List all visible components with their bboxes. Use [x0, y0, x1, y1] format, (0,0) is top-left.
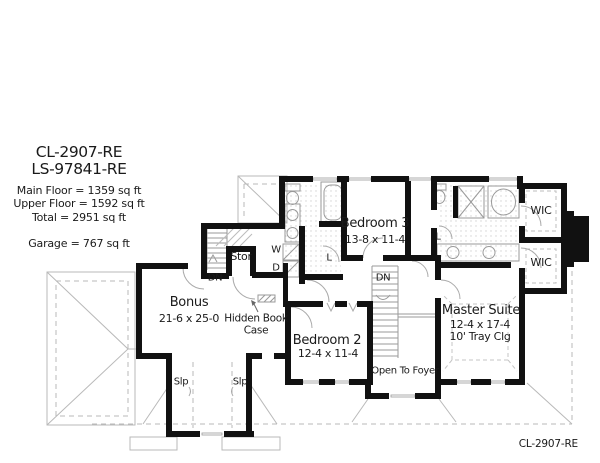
- room-label-master-suite: Master Suite: [442, 304, 520, 318]
- stor-door-arc: [233, 277, 255, 299]
- hidden-bookcase-label: Hidden Book Case: [222, 313, 290, 336]
- room-dims-bonus: 21-6 x 25-0: [159, 313, 219, 325]
- dn-back-label: DN: [208, 273, 223, 284]
- master-bath-door-arc: [412, 261, 428, 277]
- stor-label: Stor: [230, 251, 251, 263]
- linen-master-label: L: [435, 232, 440, 243]
- main-floor-area: Main Floor = 1359 sq ft: [13, 184, 144, 198]
- room-label-bedroom3: Bedroom 3: [341, 217, 410, 231]
- slope-left-label: Slp: [174, 377, 189, 388]
- footer-plan-code: CL-2907-RE: [519, 438, 578, 450]
- hidden-bookcase-icon: [251, 295, 275, 312]
- title-block: CL-2907-RE LS-97841-RE Main Floor = 1359…: [13, 144, 144, 251]
- bedroom2-door-arc: [291, 307, 312, 328]
- plan-code: CL-2907-RE: [13, 144, 144, 161]
- wic-bottom-label: WIC: [531, 257, 552, 269]
- room-note-master-suite: 10' Tray Clg: [449, 331, 510, 343]
- linen-hall-label: L: [326, 253, 331, 264]
- alt-plan-code: LS-97841-RE: [13, 161, 144, 178]
- master-entry-door-arc: [441, 280, 460, 299]
- slope-tick-left: [189, 387, 191, 396]
- dn-main-label: DN: [376, 273, 391, 284]
- upper-floor-area: Upper Floor = 1592 sq ft: [13, 197, 144, 211]
- open-to-foyer-label: Open To Foyer: [371, 366, 438, 377]
- floorplan-page: CL-2907-RE LS-97841-RE Main Floor = 1359…: [0, 0, 600, 463]
- wic-top-label: WIC: [531, 205, 552, 217]
- room-dims-bedroom2: 12-4 x 11-4: [298, 348, 358, 360]
- stair-railing: [398, 314, 435, 317]
- bonus-door-arc: [183, 268, 204, 289]
- room-label-bonus: Bonus: [170, 296, 209, 310]
- total-area: Total = 2951 sq ft: [13, 211, 144, 225]
- washer-label: W: [271, 245, 281, 256]
- dryer-label: D: [272, 263, 279, 274]
- garage-area: Garage = 767 sq ft: [13, 237, 144, 251]
- slope-right-label: Slp: [233, 377, 248, 388]
- chimney: [565, 216, 589, 262]
- hall-bath-door-arc: [307, 280, 329, 302]
- room-dims-bedroom3: 13-8 x 11-4: [345, 234, 405, 246]
